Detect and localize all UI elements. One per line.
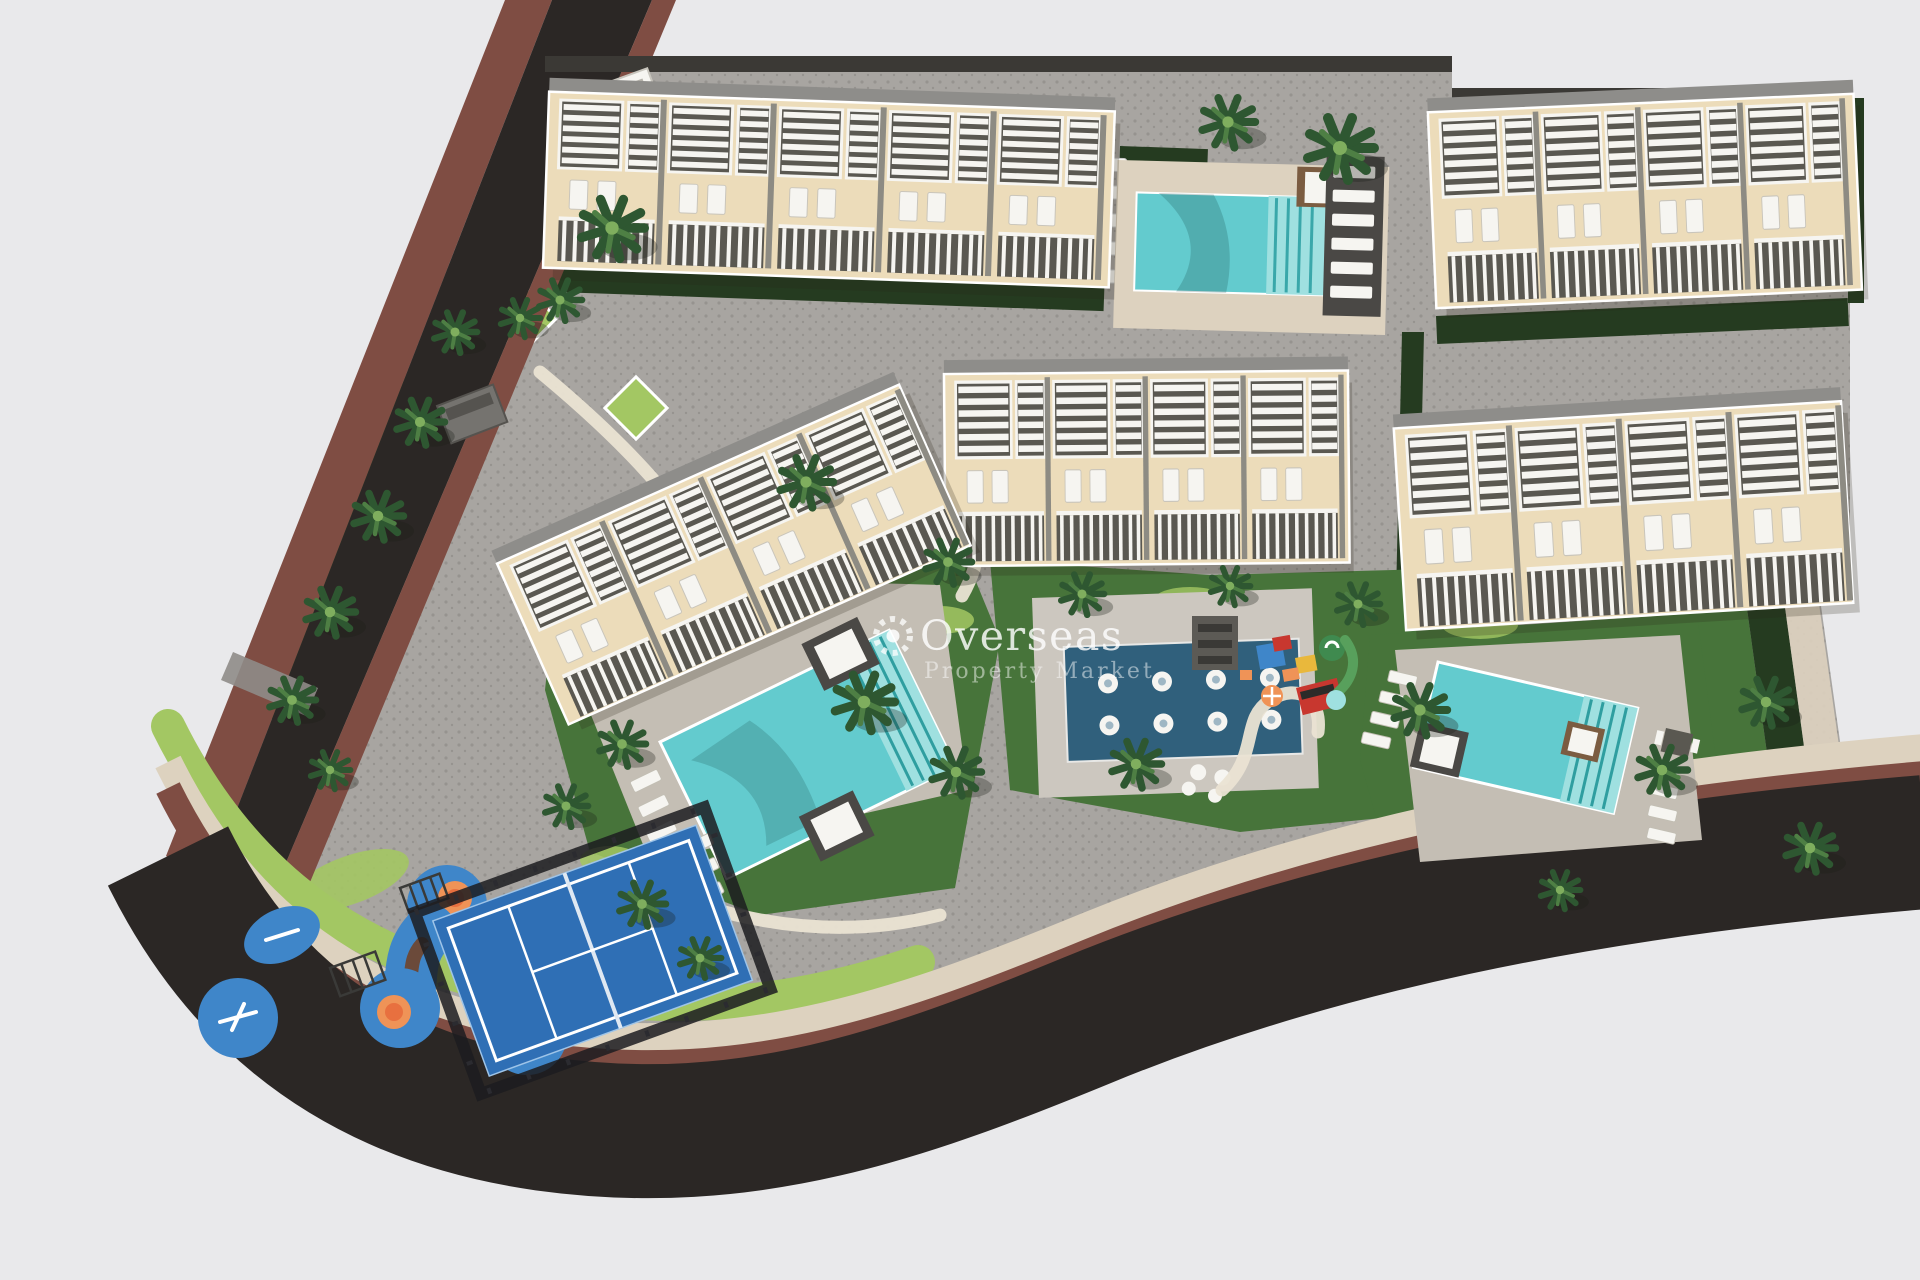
building-block-3 [944,357,1354,577]
render-stage: Overseas Property Market [0,0,1920,1280]
building-block-5 [1393,387,1860,640]
boundary-wall [545,56,1452,72]
building-block-2 [1427,80,1868,319]
picnic-pergola [1192,616,1238,670]
building-block-1 [543,78,1122,300]
watermark-brand: Overseas [920,612,1123,660]
site-plan-render: Overseas Property Market [0,0,1920,1280]
watermark-tagline: Property Market [924,659,1155,684]
